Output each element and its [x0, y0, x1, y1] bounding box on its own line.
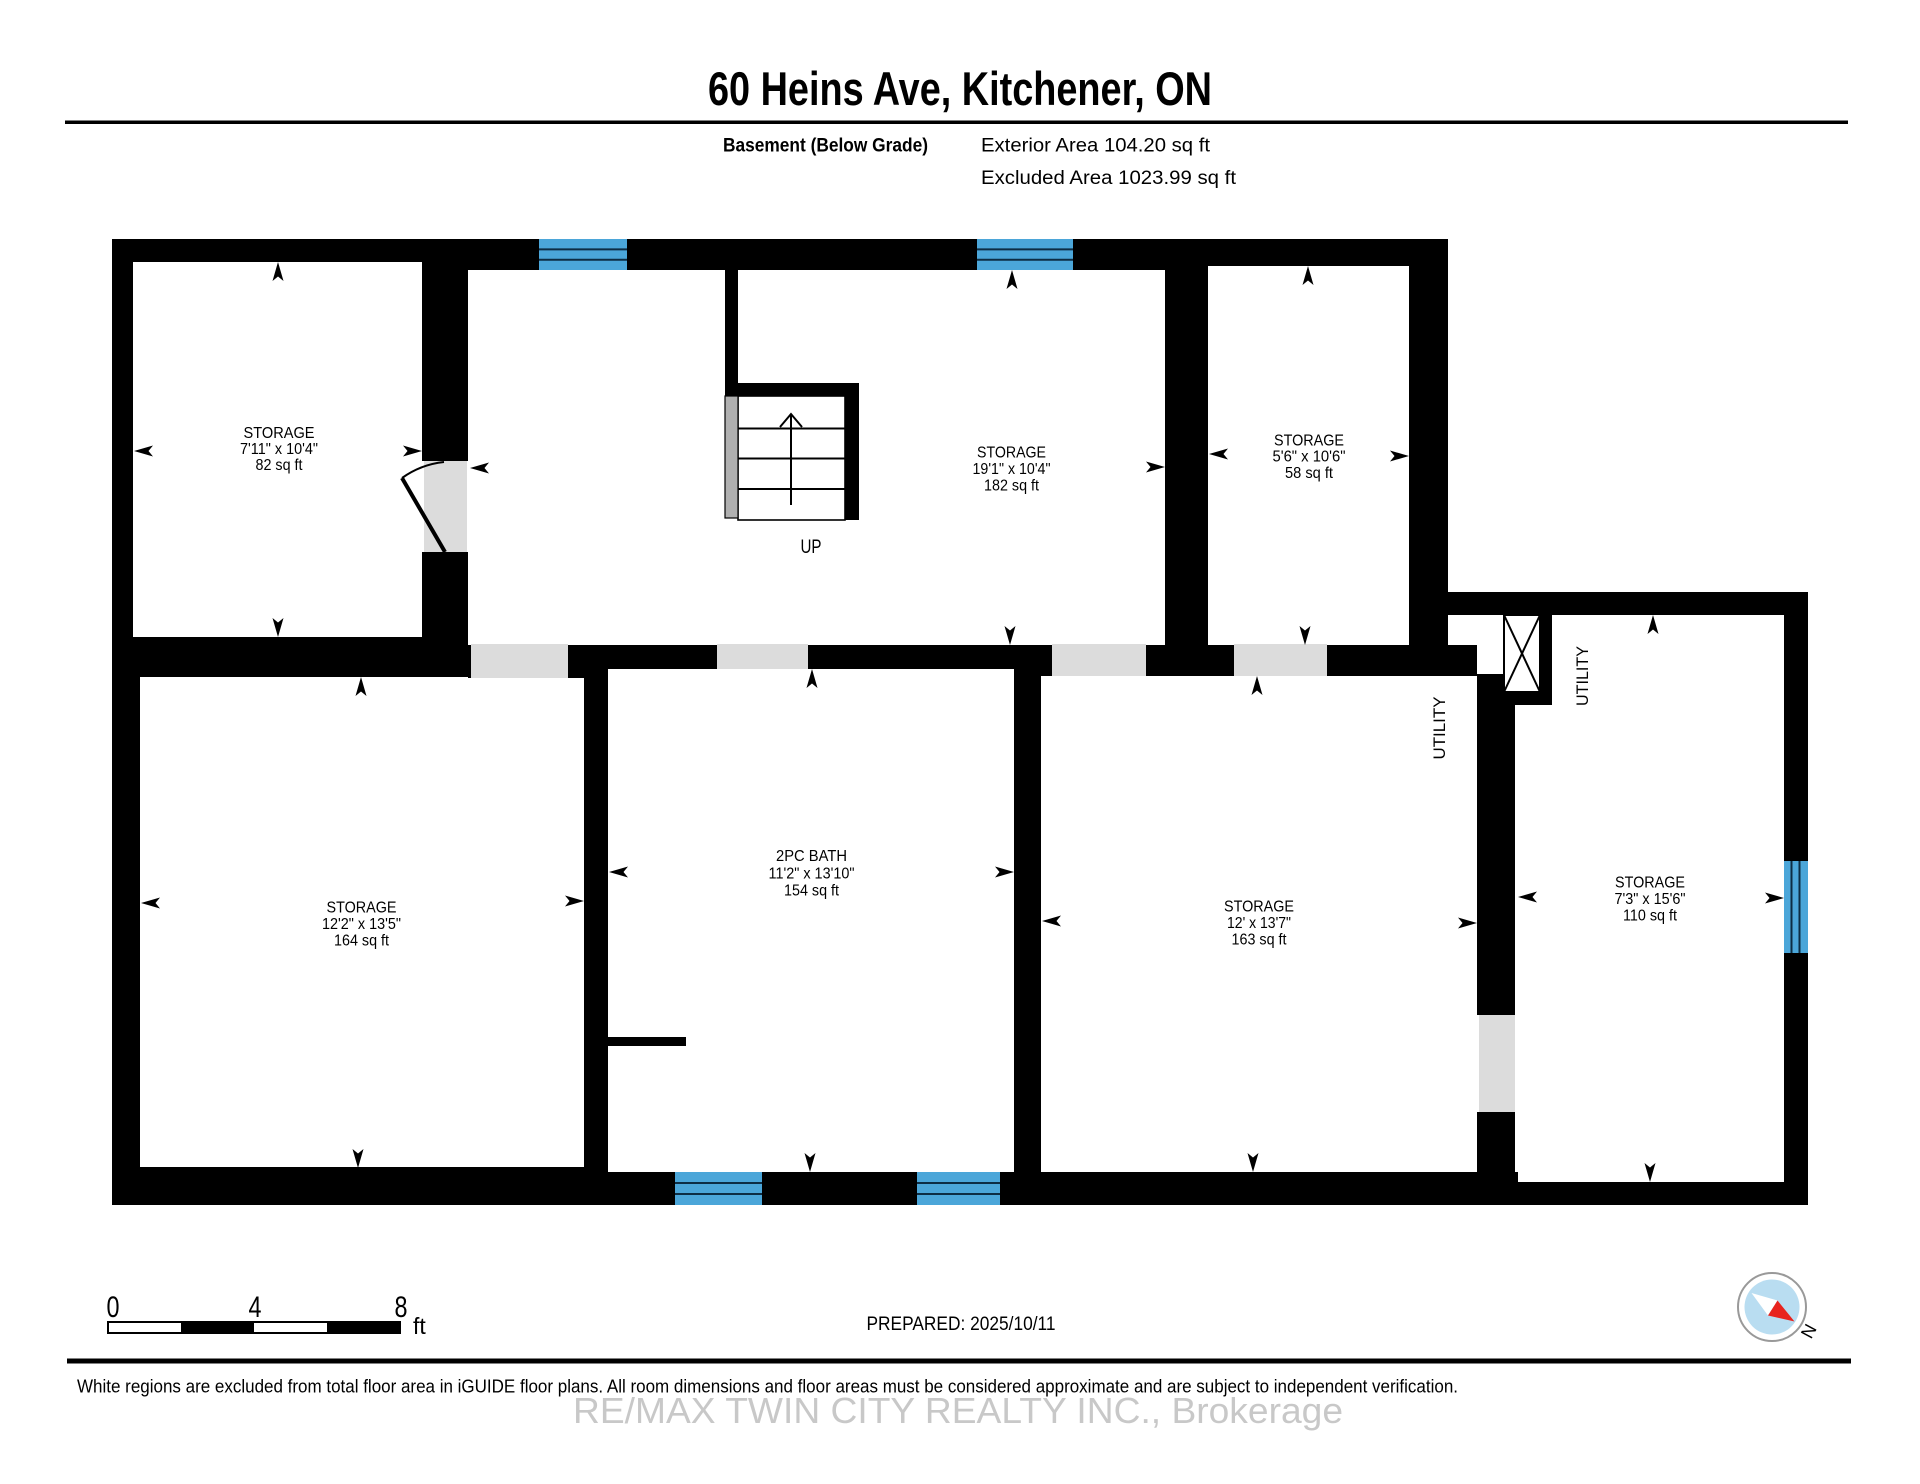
- svg-text:Exterior Area 104.20 sq ft: Exterior Area 104.20 sq ft: [981, 136, 1211, 157]
- svg-text:8: 8: [395, 1291, 408, 1324]
- svg-text:RE/MAX TWIN CITY REALTY INC.,: RE/MAX TWIN CITY REALTY INC., Brokerage: [573, 1390, 1343, 1431]
- svg-text:163 sq ft: 163 sq ft: [1232, 932, 1287, 949]
- svg-text:UP: UP: [801, 537, 822, 558]
- svg-text:4: 4: [249, 1291, 262, 1324]
- svg-text:2PC BATH: 2PC BATH: [776, 848, 847, 865]
- svg-text:7'11" x 10'4": 7'11" x 10'4": [240, 441, 318, 458]
- svg-text:STORAGE: STORAGE: [327, 900, 397, 917]
- svg-text:7'3" x 15'6": 7'3" x 15'6": [1615, 891, 1686, 908]
- svg-text:110 sq ft: 110 sq ft: [1623, 908, 1677, 925]
- svg-text:19'1" x 10'4": 19'1" x 10'4": [973, 461, 1051, 478]
- svg-text:60 Heins Ave, Kitchener, ON: 60 Heins Ave, Kitchener, ON: [708, 62, 1212, 115]
- svg-text:PREPARED: 2025/10/11: PREPARED: 2025/10/11: [867, 1313, 1056, 1335]
- svg-text:11'2" x 13'10": 11'2" x 13'10": [769, 866, 855, 883]
- svg-text:58 sq ft: 58 sq ft: [1285, 465, 1334, 482]
- svg-text:Basement (Below Grade): Basement (Below Grade): [723, 136, 928, 157]
- svg-text:5'6" x 10'6": 5'6" x 10'6": [1273, 449, 1346, 466]
- svg-text:ft: ft: [413, 1313, 426, 1339]
- svg-text:0: 0: [107, 1291, 120, 1324]
- svg-text:UTILITY: UTILITY: [1574, 646, 1592, 706]
- svg-text:STORAGE: STORAGE: [977, 445, 1046, 462]
- svg-text:154 sq ft: 154 sq ft: [784, 883, 839, 900]
- svg-text:82 sq ft: 82 sq ft: [256, 457, 303, 474]
- svg-text:12' x 13'7": 12' x 13'7": [1227, 915, 1291, 932]
- svg-text:STORAGE: STORAGE: [1274, 433, 1344, 450]
- svg-text:12'2" x 13'5": 12'2" x 13'5": [322, 916, 401, 933]
- svg-text:UTILITY: UTILITY: [1431, 697, 1449, 760]
- svg-text:STORAGE: STORAGE: [1224, 899, 1294, 916]
- svg-text:STORAGE: STORAGE: [1615, 875, 1685, 892]
- svg-text:Excluded Area 1023.99 sq ft: Excluded Area 1023.99 sq ft: [981, 168, 1237, 189]
- svg-text:164 sq ft: 164 sq ft: [334, 933, 389, 950]
- svg-text:182 sq ft: 182 sq ft: [984, 478, 1039, 495]
- svg-text:STORAGE: STORAGE: [244, 425, 315, 442]
